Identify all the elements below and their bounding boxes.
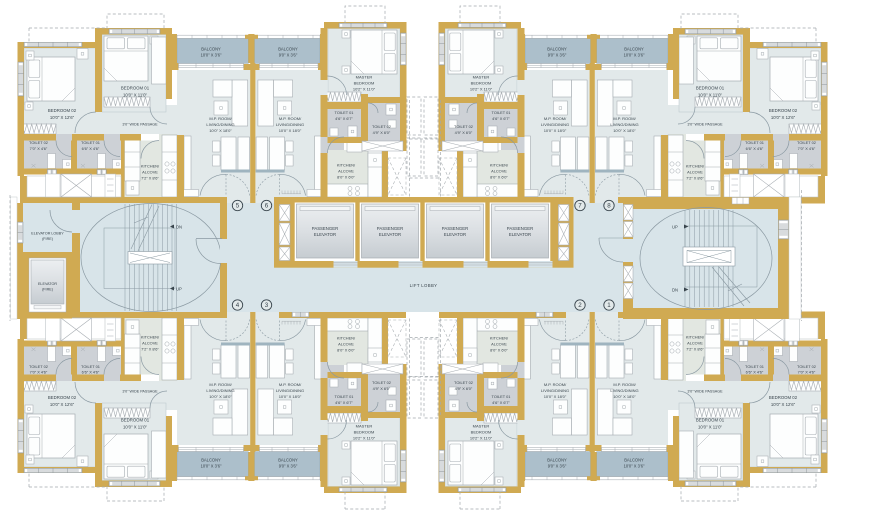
svg-text:10'0" X 3'6": 10'0" X 3'6": [624, 464, 645, 469]
svg-text:4'6" X 6'7": 4'6" X 6'7": [492, 400, 510, 405]
svg-text:9'0" X 3'6": 9'0" X 3'6": [548, 53, 567, 58]
svg-text:10'2" X 11'0": 10'2" X 11'0": [470, 86, 493, 91]
svg-text:8'0" X 6'0": 8'0" X 6'0": [337, 347, 355, 352]
svg-text:BEDROOM 01: BEDROOM 01: [121, 86, 150, 91]
svg-text:6'6" X 4'6": 6'6" X 4'6": [82, 370, 100, 375]
svg-text:BALCONY: BALCONY: [278, 46, 298, 51]
svg-text:6'6" X 4'6": 6'6" X 4'6": [82, 146, 100, 151]
svg-text:M.P. ROOM/: M.P. ROOM/: [209, 382, 232, 387]
svg-text:LIVING/DINING: LIVING/DINING: [610, 388, 638, 393]
svg-text:KITCHEN/: KITCHEN/: [686, 163, 705, 168]
svg-text:ELEVATOR: ELEVATOR: [444, 232, 466, 237]
svg-text:9'0" X 3'6": 9'0" X 3'6": [279, 464, 298, 469]
svg-text:M.P. ROOM/: M.P. ROOM/: [613, 116, 636, 121]
svg-text:M.P. ROOM/: M.P. ROOM/: [544, 382, 567, 387]
svg-text:TOILET 02: TOILET 02: [29, 364, 48, 369]
svg-text:BALCONY: BALCONY: [547, 46, 567, 51]
svg-text:PASSENGER: PASSENGER: [312, 226, 338, 231]
svg-text:MASTER: MASTER: [473, 74, 490, 79]
svg-text:10'0" X 18'0": 10'0" X 18'0": [279, 128, 302, 133]
svg-text:BEDROOM: BEDROOM: [354, 80, 375, 85]
svg-text:ALCOVE: ALCOVE: [142, 169, 158, 174]
svg-text:6'6" X 4'6": 6'6" X 4'6": [746, 370, 764, 375]
svg-text:8'0" X 6'0": 8'0" X 6'0": [337, 174, 355, 179]
svg-text:BALCONY: BALCONY: [624, 457, 644, 462]
svg-text:10'2" X 11'0": 10'2" X 11'0": [353, 86, 376, 91]
svg-text:TOILET 02: TOILET 02: [797, 364, 816, 369]
svg-text:LIVING/DINING: LIVING/DINING: [610, 122, 638, 127]
svg-text:KITCHEN/: KITCHEN/: [490, 335, 509, 340]
svg-text:10'0" X 12'6": 10'0" X 12'6": [771, 115, 796, 120]
svg-text:LIVING/DINING: LIVING/DINING: [541, 122, 569, 127]
svg-text:TOILET 01: TOILET 01: [335, 110, 354, 115]
svg-text:KITCHEN/: KITCHEN/: [141, 334, 160, 339]
svg-text:BEDROOM 01: BEDROOM 01: [696, 86, 725, 91]
svg-text:10'0" X 12'6": 10'0" X 12'6": [771, 402, 796, 407]
svg-text:10'0" X 11'0": 10'0" X 11'0": [123, 424, 147, 429]
svg-text:(FIRE): (FIRE): [42, 237, 53, 241]
svg-text:DN: DN: [672, 288, 678, 293]
svg-text:KITCHEN/: KITCHEN/: [141, 163, 160, 168]
svg-text:LIVING/DINING: LIVING/DINING: [276, 388, 304, 393]
svg-text:7'0" X 4'6": 7'0" X 4'6": [798, 146, 816, 151]
svg-text:DN: DN: [176, 225, 182, 230]
svg-text:ALCOVE: ALCOVE: [338, 341, 354, 346]
svg-text:10'0" X 18'0": 10'0" X 18'0": [209, 394, 232, 399]
svg-text:10'0" X 12'6": 10'0" X 12'6": [50, 115, 75, 120]
svg-text:KITCHEN/: KITCHEN/: [337, 335, 356, 340]
svg-text:LIVING/DINING: LIVING/DINING: [276, 122, 304, 127]
svg-text:4'9" X 6'0": 4'9" X 6'0": [373, 130, 391, 135]
svg-text:6'6" X 4'6": 6'6" X 4'6": [746, 146, 764, 151]
svg-text:ELEVATOR LOBBY: ELEVATOR LOBBY: [31, 232, 64, 236]
svg-text:MASTER: MASTER: [473, 423, 490, 428]
svg-text:2: 2: [578, 302, 582, 309]
svg-text:ALCOVE: ALCOVE: [491, 341, 507, 346]
svg-text:ALCOVE: ALCOVE: [687, 340, 703, 345]
svg-text:10'0" X 3'6": 10'0" X 3'6": [624, 53, 645, 58]
svg-text:3'0" WIDE PASSAGE: 3'0" WIDE PASSAGE: [122, 122, 158, 126]
svg-text:TOILET 01: TOILET 01: [745, 140, 764, 145]
svg-text:9'0" X 3'6": 9'0" X 3'6": [548, 464, 567, 469]
svg-text:7'0" X 4'6": 7'0" X 4'6": [30, 370, 48, 375]
svg-text:ALCOVE: ALCOVE: [142, 340, 158, 345]
svg-text:10'0" X 3'6": 10'0" X 3'6": [201, 53, 222, 58]
svg-text:KITCHEN/: KITCHEN/: [490, 162, 509, 167]
svg-text:7'0" X 4'6": 7'0" X 4'6": [798, 370, 816, 375]
svg-text:4'9" X 6'0": 4'9" X 6'0": [455, 130, 473, 135]
svg-text:TOILET 02: TOILET 02: [372, 380, 391, 385]
svg-text:7'2" X 8'6": 7'2" X 8'6": [141, 175, 159, 180]
svg-text:ALCOVE: ALCOVE: [338, 168, 354, 173]
svg-text:TOILET 01: TOILET 01: [81, 140, 100, 145]
svg-text:7'2" X 8'6": 7'2" X 8'6": [686, 175, 704, 180]
svg-text:10'2" X 11'0": 10'2" X 11'0": [353, 435, 376, 440]
svg-text:BEDROOM 02: BEDROOM 02: [48, 108, 77, 113]
svg-text:KITCHEN/: KITCHEN/: [686, 334, 705, 339]
svg-text:PASSENGER: PASSENGER: [377, 226, 403, 231]
svg-text:TOILET 01: TOILET 01: [81, 364, 100, 369]
svg-text:7'2" X 8'6": 7'2" X 8'6": [686, 346, 704, 351]
svg-text:7'2" X 8'6": 7'2" X 8'6": [141, 346, 159, 351]
svg-text:BEDROOM 01: BEDROOM 01: [121, 418, 150, 423]
svg-text:8'0" X 6'0": 8'0" X 6'0": [490, 347, 508, 352]
svg-text:9'0" X 3'6": 9'0" X 3'6": [279, 53, 298, 58]
svg-text:4'6" X 6'7": 4'6" X 6'7": [492, 116, 510, 121]
svg-text:4'6" X 6'7": 4'6" X 6'7": [335, 400, 353, 405]
svg-text:10'0" X 18'0": 10'0" X 18'0": [544, 394, 567, 399]
svg-text:BEDROOM: BEDROOM: [471, 80, 492, 85]
svg-text:3'0" WIDE PASSAGE: 3'0" WIDE PASSAGE: [687, 122, 723, 126]
svg-text:KITCHEN/: KITCHEN/: [337, 162, 356, 167]
svg-text:BALCONY: BALCONY: [201, 46, 221, 51]
svg-text:ELEVATOR: ELEVATOR: [314, 232, 336, 237]
svg-text:ELEVATOR: ELEVATOR: [379, 232, 401, 237]
svg-text:10'0" X 18'0": 10'0" X 18'0": [279, 394, 302, 399]
svg-text:BALCONY: BALCONY: [201, 457, 221, 462]
svg-text:UP: UP: [176, 287, 182, 292]
svg-text:TOILET 02: TOILET 02: [454, 380, 473, 385]
svg-text:MASTER: MASTER: [356, 423, 373, 428]
svg-text:ALCOVE: ALCOVE: [687, 169, 703, 174]
svg-text:4'6" X 6'7": 4'6" X 6'7": [335, 116, 353, 121]
svg-text:TOILET 02: TOILET 02: [372, 124, 391, 129]
svg-text:3'0" WIDE PASSAGE: 3'0" WIDE PASSAGE: [687, 389, 723, 393]
svg-text:LIVING/DINING: LIVING/DINING: [206, 388, 234, 393]
svg-text:4'9" X 6'0": 4'9" X 6'0": [455, 386, 473, 391]
svg-text:1: 1: [607, 302, 611, 309]
svg-text:3'0" WIDE PASSAGE: 3'0" WIDE PASSAGE: [122, 389, 158, 393]
svg-text:5: 5: [236, 203, 240, 210]
svg-text:TOILET 01: TOILET 01: [335, 394, 354, 399]
svg-text:LIFT LOBBY: LIFT LOBBY: [410, 283, 438, 288]
svg-text:6: 6: [265, 203, 269, 210]
svg-text:TOILET 01: TOILET 01: [492, 110, 511, 115]
svg-text:BALCONY: BALCONY: [547, 457, 567, 462]
svg-text:10'0" X 3'6": 10'0" X 3'6": [201, 464, 222, 469]
svg-text:PASSENGER: PASSENGER: [507, 226, 533, 231]
svg-text:10'0" X 11'0": 10'0" X 11'0": [698, 424, 722, 429]
svg-text:10'0" X 12'6": 10'0" X 12'6": [50, 402, 75, 407]
svg-text:BEDROOM: BEDROOM: [354, 429, 375, 434]
svg-text:8'0" X 6'0": 8'0" X 6'0": [490, 174, 508, 179]
svg-text:BALCONY: BALCONY: [624, 46, 644, 51]
svg-text:7: 7: [578, 203, 582, 210]
svg-text:M.P. ROOM/: M.P. ROOM/: [279, 116, 302, 121]
svg-text:4: 4: [236, 302, 240, 309]
svg-text:TOILET 02: TOILET 02: [29, 140, 48, 145]
svg-text:MASTER: MASTER: [356, 74, 373, 79]
svg-text:10'0" X 18'0": 10'0" X 18'0": [209, 128, 232, 133]
svg-text:BEDROOM 02: BEDROOM 02: [48, 395, 77, 400]
svg-text:10'0" X 11'0": 10'0" X 11'0": [698, 92, 722, 97]
svg-text:ELEVATOR: ELEVATOR: [509, 232, 531, 237]
svg-text:10'0" X 18'0": 10'0" X 18'0": [544, 128, 567, 133]
svg-text:TOILET 02: TOILET 02: [797, 140, 816, 145]
svg-text:TOILET 01: TOILET 01: [745, 364, 764, 369]
svg-text:M.P. ROOM/: M.P. ROOM/: [279, 382, 302, 387]
svg-text:7'0" X 4'6": 7'0" X 4'6": [30, 146, 48, 151]
svg-text:UP: UP: [672, 225, 678, 230]
svg-text:BEDROOM 01: BEDROOM 01: [696, 418, 725, 423]
svg-text:4'9" X 6'0": 4'9" X 6'0": [373, 386, 391, 391]
svg-text:LIVING/DINING: LIVING/DINING: [541, 388, 569, 393]
svg-text:TOILET 02: TOILET 02: [454, 124, 473, 129]
svg-text:M.P. ROOM/: M.P. ROOM/: [613, 382, 636, 387]
svg-text:ALCOVE: ALCOVE: [491, 168, 507, 173]
svg-text:M.P. ROOM/: M.P. ROOM/: [544, 116, 567, 121]
svg-text:3: 3: [265, 302, 269, 309]
svg-text:BEDROOM 02: BEDROOM 02: [769, 108, 798, 113]
svg-text:10'0" X 18'0": 10'0" X 18'0": [613, 128, 636, 133]
svg-text:10'2" X 11'0": 10'2" X 11'0": [470, 435, 493, 440]
svg-text:10'0" X 11'0": 10'0" X 11'0": [123, 92, 147, 97]
svg-text:(FIRE): (FIRE): [42, 287, 53, 291]
svg-text:ELEVATOR: ELEVATOR: [38, 282, 57, 286]
svg-text:10'0" X 18'0": 10'0" X 18'0": [613, 394, 636, 399]
svg-text:BEDROOM 02: BEDROOM 02: [769, 395, 798, 400]
svg-text:BEDROOM: BEDROOM: [471, 429, 492, 434]
svg-text:M.P. ROOM/: M.P. ROOM/: [209, 116, 232, 121]
svg-text:8: 8: [607, 203, 611, 210]
svg-text:LIVING/DINING: LIVING/DINING: [206, 122, 234, 127]
svg-text:PASSENGER: PASSENGER: [442, 226, 468, 231]
svg-text:TOILET 01: TOILET 01: [492, 394, 511, 399]
svg-text:BALCONY: BALCONY: [278, 457, 298, 462]
